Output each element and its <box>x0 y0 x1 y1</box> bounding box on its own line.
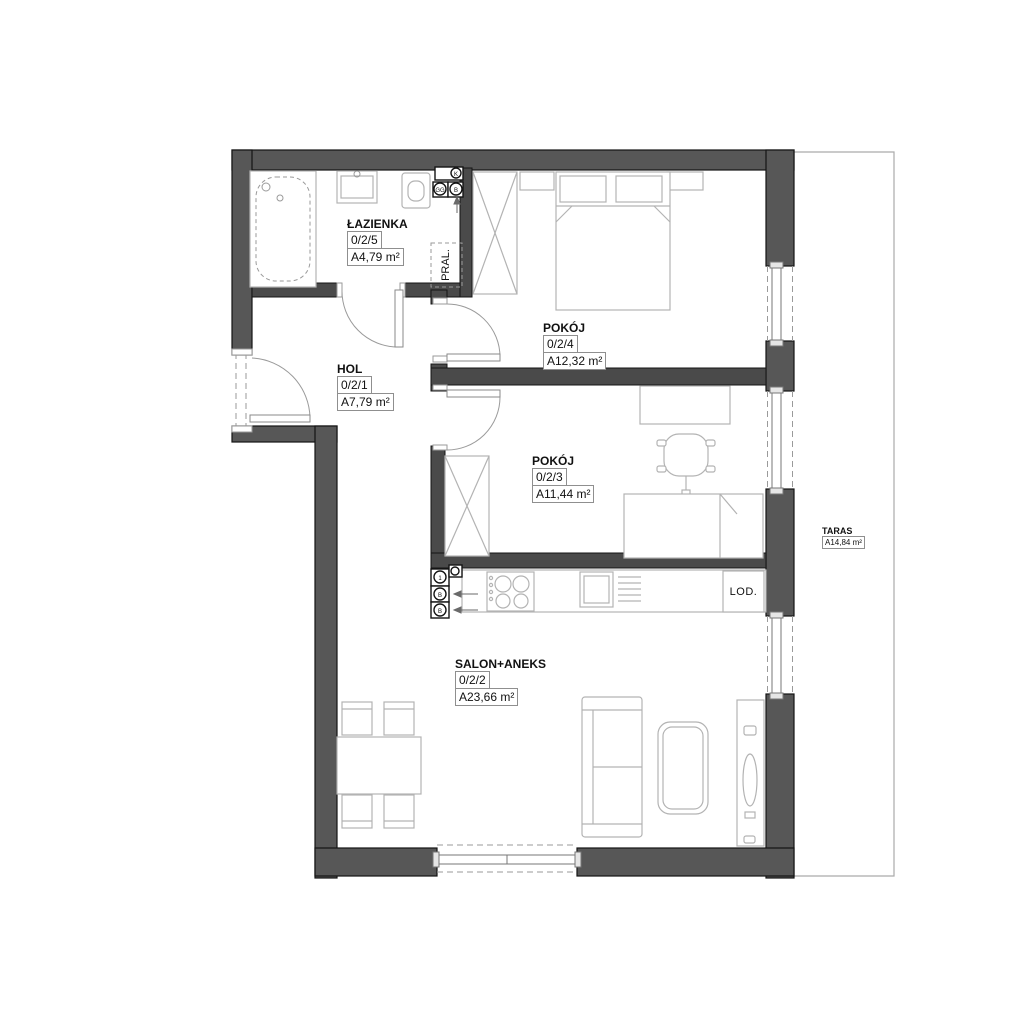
room-id: 0/2/3 <box>532 468 567 486</box>
door-bedroom-large <box>433 298 500 362</box>
wardrobe-bedroom-small <box>445 456 489 556</box>
washing-machine-label: PRAL. <box>424 243 468 287</box>
wall-left-lower <box>315 426 337 878</box>
wall-bottom-seg2 <box>577 848 794 876</box>
wall-between-bedrooms <box>431 368 766 385</box>
dining-table <box>337 737 421 794</box>
door-bedroom-small <box>433 385 500 450</box>
window-bedroom-large <box>768 262 793 346</box>
sofa <box>582 697 642 837</box>
room-id: 0/2/5 <box>347 231 382 249</box>
window-living-room-bottom <box>433 845 581 872</box>
room-name: HOL <box>337 363 394 375</box>
wardrobe-bedroom-large <box>473 172 517 294</box>
room-name: TARAS <box>822 527 865 536</box>
room-area: A12,32 m² <box>543 352 606 370</box>
room-name: SALON+ANEKS <box>455 658 546 670</box>
window-bedroom-small <box>768 387 793 494</box>
room-label-living-room: SALON+ANEKS 0/2/2 A23,66 m² <box>455 658 546 706</box>
room-label-bedroom-small: POKÓJ 0/2/3 A11,44 m² <box>532 455 594 503</box>
desk <box>640 386 730 424</box>
shaft-letter: B <box>454 188 458 194</box>
floor-plan: K GG B <box>0 0 1024 1024</box>
wall-right-seg3 <box>766 489 794 616</box>
room-area: A23,66 m² <box>455 688 518 706</box>
room-label-hall: HOL 0/2/1 A7,79 m² <box>337 363 394 411</box>
room-label-bedroom-large: POKÓJ 0/2/4 A12,32 m² <box>543 322 606 370</box>
wall-top <box>232 150 794 170</box>
door-bathroom <box>337 283 405 347</box>
room-area: A14,84 m² <box>822 536 865 549</box>
floor-plan-drawing: K GG B <box>0 0 1024 1024</box>
room-label-terrace: TARAS A14,84 m² <box>822 527 865 549</box>
toilet <box>402 173 430 208</box>
room-name: POKÓJ <box>532 455 594 467</box>
shaft-letter: GG <box>435 188 445 194</box>
wall-bottom-seg1 <box>315 848 437 876</box>
double-bed <box>556 172 670 310</box>
stove <box>487 572 534 611</box>
room-id: 0/2/2 <box>455 671 490 689</box>
bathroom-sink <box>337 171 377 203</box>
wall-right-seg2 <box>766 341 794 391</box>
utility-shaft-bathroom: K GG B <box>433 167 463 213</box>
shaft-letter: K <box>454 172 458 178</box>
wall-left-upper <box>232 150 252 355</box>
window-living-room <box>768 612 793 699</box>
room-area: A4,79 m² <box>347 248 404 266</box>
office-chair <box>657 434 715 496</box>
fridge-label: LOD. <box>723 571 764 612</box>
shaft-letter: B <box>438 609 442 615</box>
room-name: POKÓJ <box>543 322 606 334</box>
room-label-bathroom: ŁAZIENKA 0/2/5 A4,79 m² <box>347 218 408 266</box>
room-id: 0/2/4 <box>543 335 578 353</box>
bathtub <box>250 171 316 287</box>
wall-hall-bedroom-small <box>431 446 445 568</box>
terrace-outline <box>794 152 894 876</box>
room-area: A11,44 m² <box>532 485 594 503</box>
wall-right-seg1 <box>766 150 794 266</box>
room-id: 0/2/1 <box>337 376 372 394</box>
door-entry <box>232 349 310 432</box>
shaft-letter: B <box>438 593 442 599</box>
tv-unit <box>737 700 764 846</box>
single-bed <box>624 494 763 558</box>
coffee-table <box>658 722 708 814</box>
room-name: ŁAZIENKA <box>347 218 408 230</box>
room-area: A7,79 m² <box>337 393 394 411</box>
